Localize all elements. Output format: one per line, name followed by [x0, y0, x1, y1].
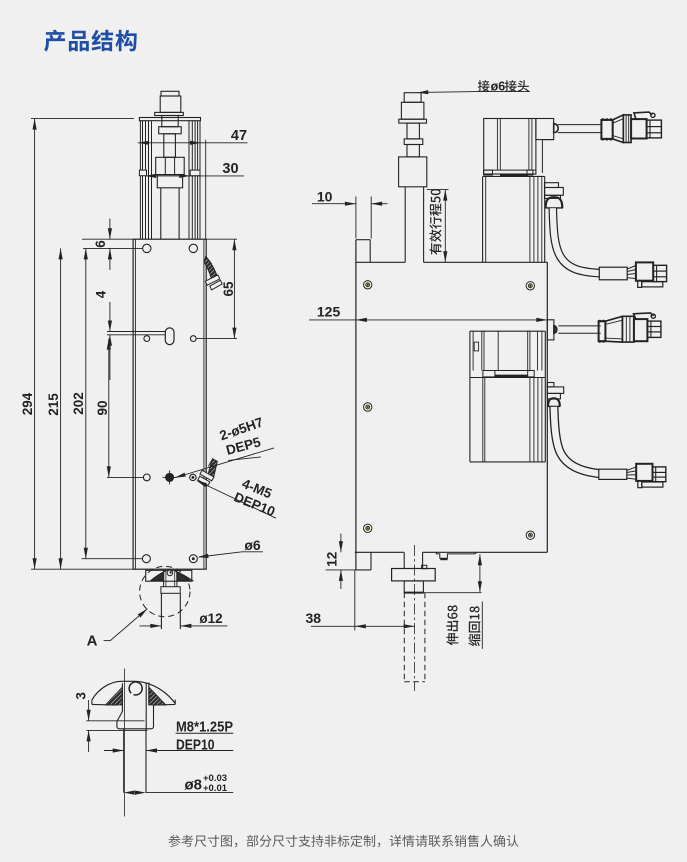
- svg-text:3: 3: [73, 692, 88, 700]
- svg-text:38: 38: [306, 610, 322, 626]
- svg-text:12: 12: [324, 552, 339, 567]
- svg-text:10: 10: [317, 188, 333, 204]
- svg-text:ø8: ø8: [185, 776, 203, 793]
- svg-text:125: 125: [317, 304, 341, 320]
- svg-text:ø6: ø6: [244, 537, 261, 553]
- svg-text:DEP10: DEP10: [176, 736, 215, 753]
- svg-text:6: 6: [93, 240, 108, 248]
- svg-text:65: 65: [221, 281, 236, 297]
- svg-text:M8*1.25P: M8*1.25P: [176, 718, 233, 735]
- svg-text:ø12: ø12: [199, 611, 222, 626]
- svg-text:30: 30: [222, 161, 238, 177]
- svg-text:4: 4: [94, 290, 109, 298]
- svg-text:202: 202: [71, 392, 86, 415]
- svg-text:215: 215: [46, 393, 61, 416]
- svg-text:90: 90: [95, 400, 110, 415]
- svg-text:294: 294: [20, 392, 35, 415]
- svg-text:A: A: [87, 633, 98, 650]
- svg-text:+0.01: +0.01: [203, 783, 228, 794]
- svg-text:47: 47: [231, 128, 247, 144]
